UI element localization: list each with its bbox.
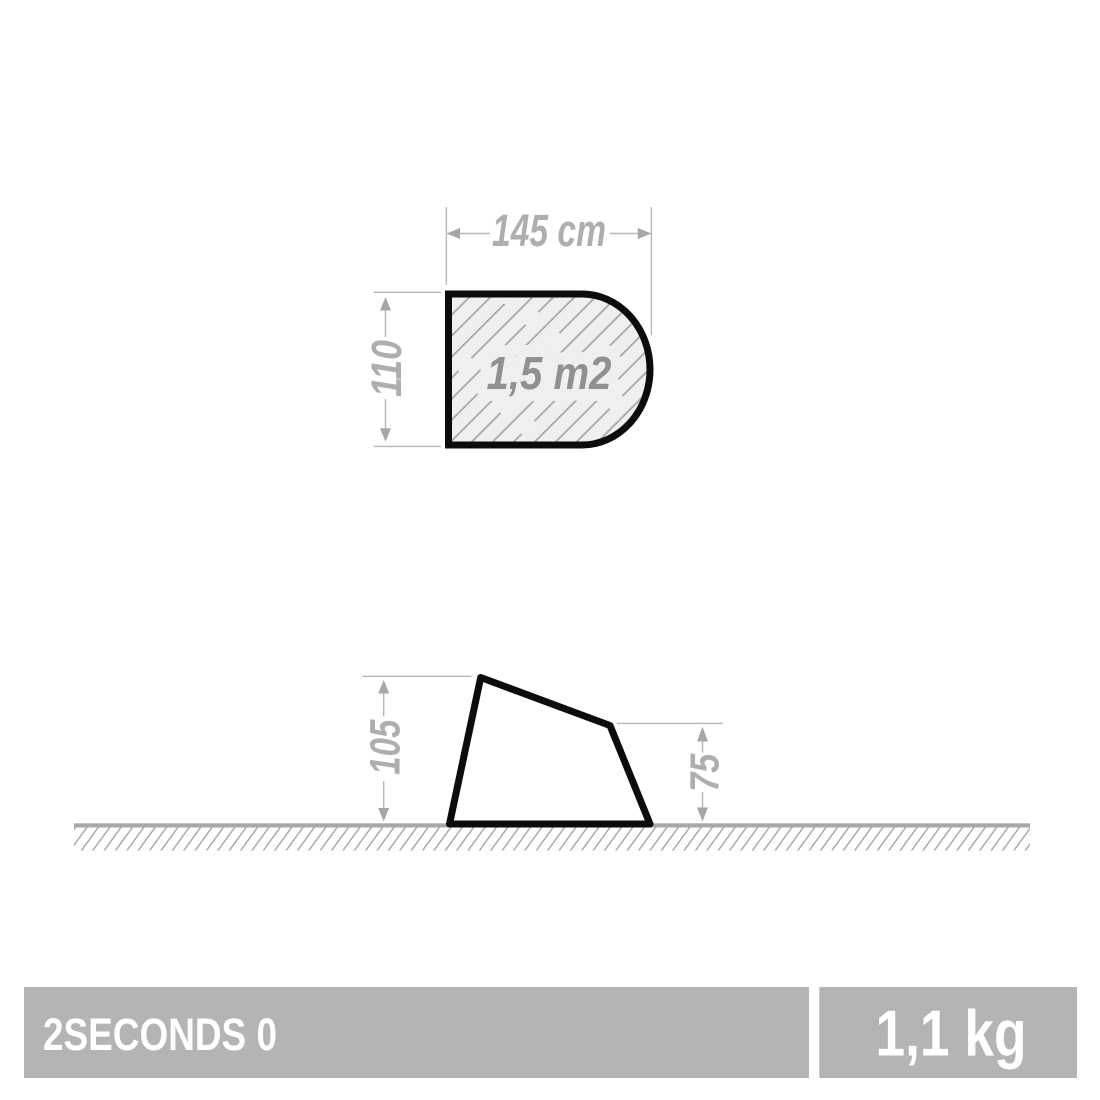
svg-text:145 cm: 145 cm	[492, 205, 606, 256]
svg-text:2SECONDS 0: 2SECONDS 0	[43, 1009, 277, 1060]
svg-text:75: 75	[682, 753, 728, 792]
svg-text:1,5 m2: 1,5 m2	[487, 347, 612, 399]
svg-text:1,1 kg: 1,1 kg	[876, 998, 1027, 1070]
svg-text:110: 110	[364, 340, 411, 397]
svg-text:105: 105	[363, 719, 410, 775]
